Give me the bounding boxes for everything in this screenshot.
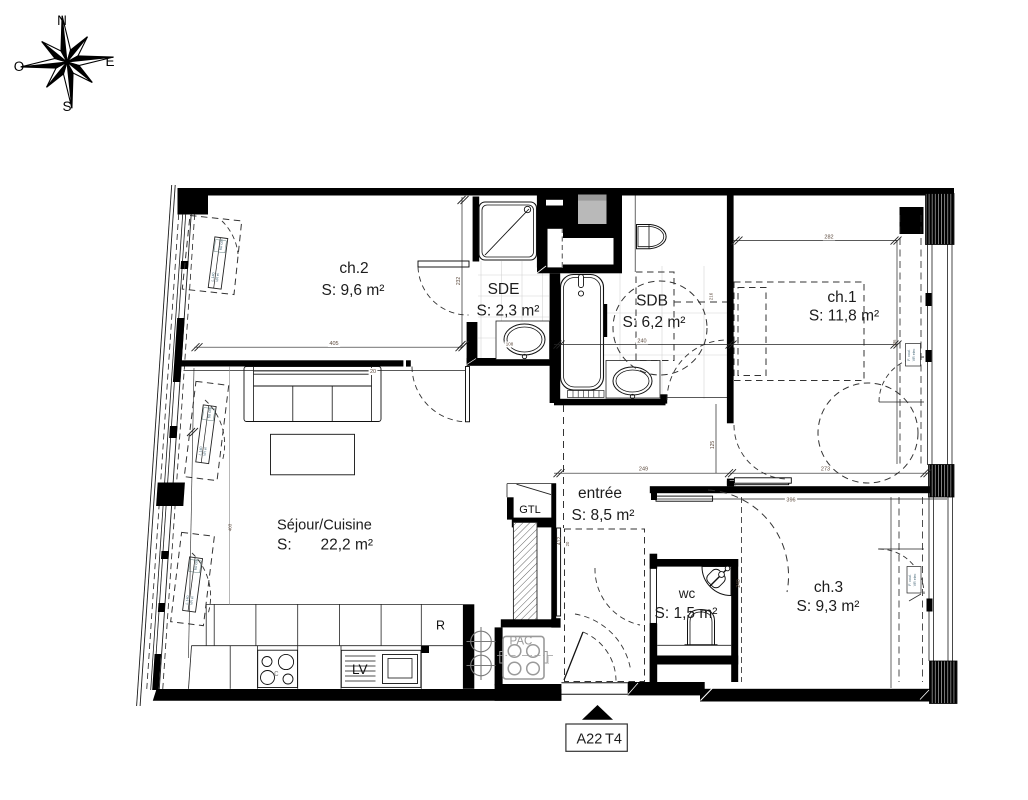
svg-text:ch.2: ch.2: [339, 260, 368, 277]
svg-text:20: 20: [370, 369, 376, 375]
svg-text:F. coul.: F. coul.: [907, 349, 911, 360]
svg-text:S: 1,5 m²: S: 1,5 m²: [655, 605, 718, 622]
svg-text:20: 20: [565, 541, 570, 546]
svg-text:T4: T4: [605, 732, 622, 748]
svg-text:403: 403: [228, 523, 233, 531]
svg-text:SDB: SDB: [636, 293, 668, 310]
svg-text:E: E: [105, 54, 114, 69]
svg-text:236: 236: [892, 339, 897, 347]
svg-text:N: N: [57, 13, 67, 28]
svg-text:A22: A22: [577, 732, 603, 748]
svg-text:LV: LV: [352, 662, 368, 677]
svg-text:R: R: [436, 619, 445, 633]
svg-text:240: 240: [736, 579, 742, 588]
svg-text:F. coul.: F. coul.: [908, 574, 912, 585]
svg-text:232: 232: [456, 277, 462, 286]
svg-text:S: S: [62, 99, 71, 114]
svg-text:ch.1: ch.1: [827, 289, 856, 306]
svg-text:S: 8,5 m²: S: 8,5 m²: [572, 507, 635, 524]
svg-text:VR elec: VR elec: [912, 349, 916, 362]
svg-text:396: 396: [786, 498, 795, 504]
svg-text:GTL: GTL: [519, 504, 540, 516]
svg-text:240: 240: [637, 339, 646, 345]
svg-text:S: 9,6 m²: S: 9,6 m²: [322, 282, 385, 299]
svg-text:249: 249: [639, 467, 648, 473]
svg-text:S: 9,3 m²: S: 9,3 m²: [797, 598, 860, 615]
svg-text:2000: 2000: [546, 656, 550, 664]
svg-text:wc: wc: [678, 586, 696, 601]
svg-text:S: 6,2 m²: S: 6,2 m²: [623, 314, 686, 331]
svg-text:125: 125: [710, 441, 716, 450]
svg-text:SDE: SDE: [488, 281, 520, 298]
svg-text:216: 216: [709, 292, 714, 300]
svg-text:S: 2,3 m²: S: 2,3 m²: [477, 303, 540, 320]
svg-text:PAC: PAC: [510, 636, 533, 648]
svg-text:c: c: [274, 668, 279, 678]
svg-text:O: O: [14, 59, 25, 74]
svg-text:282: 282: [824, 235, 833, 241]
svg-text:22,2 m²: 22,2 m²: [321, 537, 374, 554]
svg-text:VR elec: VR elec: [913, 574, 917, 587]
svg-text:S: 11,8 m²: S: 11,8 m²: [809, 308, 879, 325]
svg-text:S:: S:: [277, 537, 292, 554]
svg-text:Séjour/Cuisine: Séjour/Cuisine: [277, 518, 372, 534]
svg-text:108: 108: [506, 342, 514, 347]
svg-text:ch.3: ch.3: [814, 579, 843, 596]
svg-text:405: 405: [329, 341, 338, 347]
svg-text:entrée: entrée: [578, 485, 622, 502]
svg-text:412: 412: [557, 537, 563, 546]
svg-text:273: 273: [821, 467, 830, 473]
